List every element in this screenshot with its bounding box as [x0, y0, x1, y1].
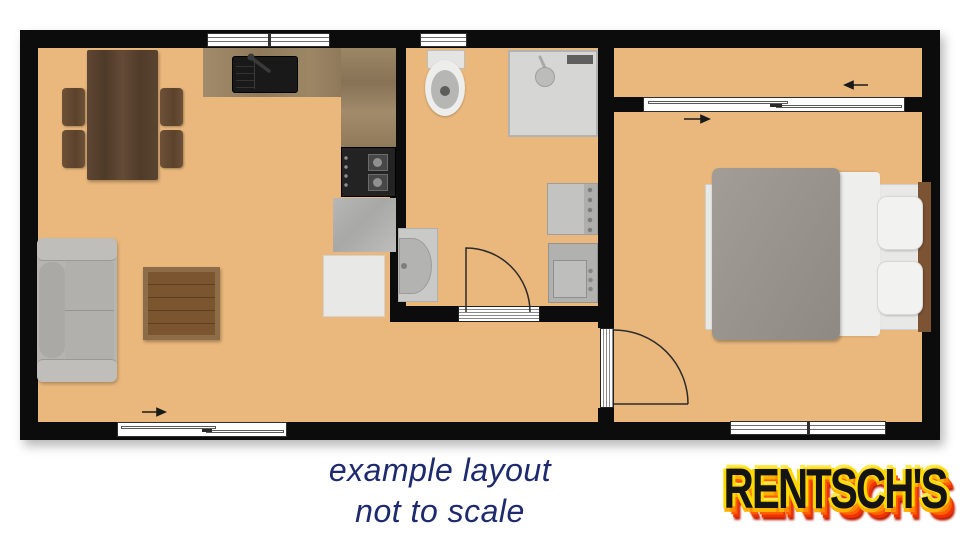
- sofa-armrest: [37, 238, 117, 261]
- bathroom-window-icon: [420, 33, 467, 47]
- fridge-cabinet-icon: [323, 255, 385, 317]
- kitchen-counter-side-icon: [341, 48, 396, 147]
- window-divider: [807, 422, 810, 434]
- caption-line-2: not to scale: [250, 491, 630, 532]
- shower-icon: [508, 50, 598, 137]
- appliance-door: [553, 260, 587, 298]
- duvet-icon: [712, 168, 840, 340]
- pillow-icon: [877, 261, 923, 315]
- pillow-icon: [877, 196, 923, 250]
- wall-bedroom-closet-left: [614, 97, 643, 112]
- caption-line-1: example layout: [250, 450, 630, 491]
- sliding-panel: [776, 105, 902, 108]
- wall-bedroom-left-lower: [598, 408, 614, 422]
- door-handle: [202, 429, 212, 432]
- bathroom-sink-icon: [398, 228, 438, 302]
- drainboard: [236, 60, 255, 89]
- sofa-back: [39, 262, 65, 358]
- sliding-panel: [648, 101, 788, 104]
- sofa-seam: [65, 310, 114, 311]
- burner: [368, 154, 388, 171]
- caption: example layout not to scale: [250, 450, 630, 532]
- control-panel: [584, 184, 597, 234]
- coffee-table-icon: [143, 267, 220, 340]
- stove-knobs: [344, 154, 348, 192]
- sofa-icon: [37, 238, 117, 382]
- wall-bathroom-bottom-left: [390, 306, 458, 322]
- sofa-armrest: [37, 359, 117, 382]
- floor-plan: [20, 30, 940, 440]
- door-handle: [770, 104, 782, 107]
- washing-machine-icon: [547, 183, 598, 235]
- rentschs-logo: RENTSCH'S: [716, 457, 954, 522]
- chair-icon: [160, 88, 183, 126]
- living-sliding-door-icon: [117, 422, 287, 437]
- sofa-seat: [65, 261, 114, 359]
- kitchen-window-icon: [207, 33, 330, 47]
- toilet-drain: [440, 86, 450, 96]
- bathroom-door-icon: [458, 306, 540, 322]
- wall-bedroom-left-upper: [598, 48, 614, 328]
- dining-table-icon: [87, 50, 158, 180]
- faucet-icon: [401, 263, 407, 269]
- bedroom-door-icon: [600, 328, 614, 408]
- bedroom-sliding-door-icon: [643, 97, 905, 112]
- sliding-panel: [206, 430, 284, 433]
- bedroom-window-icon: [730, 421, 886, 435]
- chair-icon: [62, 130, 85, 168]
- chair-icon: [160, 130, 183, 168]
- shower-fixture: [567, 55, 593, 64]
- wall-bedroom-closet-right: [905, 97, 922, 112]
- window-divider: [268, 34, 271, 46]
- kitchen-sink-icon: [232, 56, 298, 93]
- toilet-icon: [425, 60, 465, 116]
- appliance-buttons: [588, 268, 593, 294]
- chair-icon: [62, 88, 85, 126]
- kitchen-counter-stone-icon: [333, 198, 396, 252]
- stove-icon: [341, 147, 396, 197]
- burner: [368, 174, 388, 191]
- dryer-icon: [548, 243, 598, 303]
